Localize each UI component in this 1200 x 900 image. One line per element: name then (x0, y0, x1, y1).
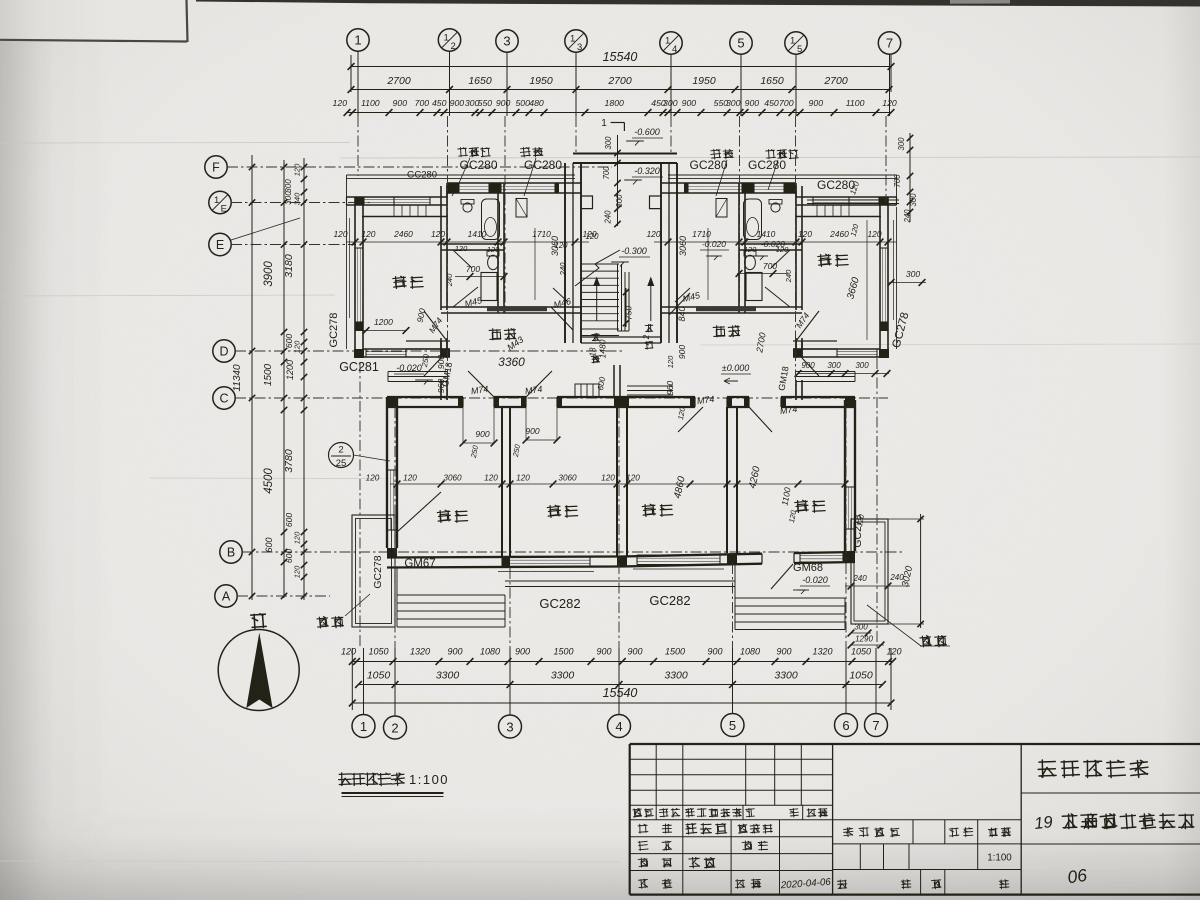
svg-text:1320: 1320 (410, 647, 430, 657)
svg-text:-0.020: -0.020 (702, 239, 726, 249)
svg-text:1: 1 (360, 719, 367, 734)
svg-text:550: 550 (478, 98, 493, 108)
svg-text:300: 300 (726, 98, 741, 108)
svg-text:120: 120 (516, 474, 530, 483)
svg-text:120: 120 (341, 647, 356, 657)
svg-text:3300: 3300 (664, 670, 688, 682)
svg-text:300: 300 (604, 136, 613, 150)
svg-text:120: 120 (886, 647, 901, 657)
svg-text:3300: 3300 (551, 670, 575, 682)
svg-text:480: 480 (529, 98, 544, 108)
svg-text:19: 19 (1033, 813, 1053, 833)
svg-text:300: 300 (906, 269, 920, 279)
svg-text:300: 300 (854, 623, 868, 632)
svg-text:1: 1 (354, 33, 361, 48)
svg-text:300: 300 (615, 194, 624, 208)
svg-text:700: 700 (415, 98, 430, 108)
svg-text:120: 120 (882, 98, 897, 108)
svg-text:1410: 1410 (757, 229, 776, 239)
svg-text:120: 120 (334, 229, 348, 239)
svg-text:700: 700 (763, 261, 777, 271)
svg-text:300: 300 (284, 179, 293, 193)
svg-text:1650: 1650 (468, 75, 492, 87)
svg-text:2: 2 (338, 445, 343, 456)
svg-text:1650: 1650 (760, 75, 784, 87)
svg-text:2700: 2700 (823, 75, 848, 87)
svg-text:120: 120 (626, 474, 640, 483)
svg-text:C: C (219, 392, 228, 406)
svg-text:18: 18 (589, 347, 598, 356)
svg-text:750: 750 (624, 306, 634, 320)
svg-text:-0.600: -0.600 (634, 127, 660, 137)
svg-text:3300: 3300 (436, 670, 460, 682)
svg-text:-0.020: -0.020 (802, 575, 828, 585)
svg-text:120: 120 (583, 229, 597, 239)
svg-text:120: 120 (333, 98, 348, 108)
svg-text:GC278: GC278 (372, 555, 384, 588)
svg-text:1050: 1050 (368, 647, 388, 657)
svg-text:900: 900 (525, 426, 539, 436)
svg-text:120: 120 (403, 474, 417, 483)
svg-text:1: 1 (443, 33, 448, 44)
svg-text:340: 340 (293, 192, 302, 205)
svg-text:300: 300 (827, 361, 841, 370)
svg-text:GC281: GC281 (339, 360, 379, 374)
svg-text:120: 120 (868, 229, 882, 239)
svg-text:1320: 1320 (812, 647, 832, 657)
svg-text:1: 1 (790, 36, 795, 47)
svg-text:700: 700 (602, 166, 611, 180)
svg-text:120: 120 (366, 474, 380, 483)
svg-text:GC280: GC280 (748, 158, 786, 172)
svg-text:1200: 1200 (374, 317, 393, 327)
svg-text:120: 120 (361, 229, 375, 239)
svg-text:1950: 1950 (692, 75, 716, 87)
svg-text:5: 5 (737, 36, 744, 51)
svg-text:2: 2 (450, 41, 455, 52)
svg-text:120: 120 (431, 229, 445, 239)
svg-text:900: 900 (450, 98, 465, 108)
svg-text:2700: 2700 (607, 75, 632, 87)
svg-text:120: 120 (293, 531, 302, 544)
svg-text:1500: 1500 (665, 647, 685, 657)
svg-text:3900: 3900 (263, 261, 275, 287)
svg-text:1:100: 1:100 (409, 772, 449, 787)
svg-text:GC280: GC280 (459, 158, 497, 172)
svg-text:1050: 1050 (849, 670, 873, 682)
svg-text:D: D (219, 345, 228, 359)
svg-text:1: 1 (570, 34, 575, 45)
svg-text:2700: 2700 (386, 75, 411, 87)
svg-text:GC282: GC282 (649, 593, 690, 608)
svg-text:3060: 3060 (550, 236, 560, 256)
svg-text:06: 06 (1066, 865, 1088, 888)
svg-text:25: 25 (336, 458, 347, 469)
svg-text:GC280: GC280 (407, 170, 437, 181)
svg-text:120: 120 (484, 474, 498, 483)
svg-text:7: 7 (872, 718, 879, 733)
svg-text:15540: 15540 (603, 686, 638, 700)
svg-text:900: 900 (447, 647, 462, 657)
svg-text:GC282: GC282 (539, 596, 580, 611)
svg-text:900: 900 (627, 647, 642, 657)
svg-text:1950: 1950 (529, 75, 553, 87)
svg-text:3060: 3060 (443, 474, 462, 483)
svg-text:240: 240 (903, 209, 912, 224)
svg-text:GC280: GC280 (689, 158, 727, 172)
svg-text:3180: 3180 (283, 254, 295, 278)
svg-text:1080: 1080 (480, 647, 500, 657)
svg-text:3: 3 (503, 34, 510, 49)
svg-text:120: 120 (293, 163, 302, 176)
svg-text:700: 700 (779, 98, 794, 108)
svg-text:900: 900 (596, 647, 611, 657)
svg-text:120: 120 (601, 474, 615, 483)
svg-text:GM68: GM68 (793, 562, 823, 574)
svg-text:900: 900 (393, 98, 408, 108)
svg-text:6: 6 (842, 718, 849, 733)
svg-text:700: 700 (893, 174, 902, 188)
svg-text:300: 300 (897, 137, 906, 151)
svg-text:120: 120 (487, 245, 500, 254)
svg-text:GC278: GC278 (852, 514, 864, 547)
svg-text:±0.000: ±0.000 (722, 363, 749, 373)
svg-text:1: 1 (601, 118, 607, 129)
svg-text:900: 900 (475, 429, 489, 439)
svg-text:120: 120 (455, 244, 468, 253)
svg-text:240: 240 (445, 273, 454, 287)
svg-text:900: 900 (809, 98, 824, 108)
svg-text:1100: 1100 (846, 98, 865, 108)
svg-text:1290: 1290 (855, 635, 873, 644)
svg-text:2460: 2460 (829, 229, 849, 239)
svg-text:15540: 15540 (603, 50, 638, 64)
svg-text:120: 120 (293, 565, 302, 578)
svg-text:3: 3 (577, 42, 582, 53)
svg-text:1710: 1710 (692, 229, 711, 239)
svg-text:1500: 1500 (263, 363, 274, 386)
svg-text:3060: 3060 (678, 236, 688, 256)
svg-text:GC280: GC280 (524, 158, 562, 172)
svg-text:-0.320: -0.320 (634, 166, 660, 176)
svg-text:2460: 2460 (393, 229, 413, 239)
svg-text:E: E (221, 204, 227, 215)
svg-text:GC278: GC278 (328, 313, 340, 348)
svg-text:2: 2 (391, 720, 398, 735)
svg-text:1100: 1100 (361, 98, 380, 108)
svg-text:E: E (216, 238, 224, 252)
svg-text:120: 120 (744, 245, 757, 254)
svg-text:1: 1 (665, 36, 670, 47)
svg-text:600: 600 (284, 549, 294, 563)
svg-text:840: 840 (677, 306, 687, 321)
svg-text:1:100: 1:100 (987, 853, 1012, 864)
svg-text:3780: 3780 (283, 449, 295, 473)
svg-text:900: 900 (496, 98, 511, 108)
svg-text:600: 600 (264, 537, 274, 552)
svg-text:900: 900 (707, 647, 722, 657)
svg-text:960: 960 (665, 381, 675, 395)
svg-text:-0.020: -0.020 (396, 363, 422, 373)
svg-text:900: 900 (776, 647, 791, 657)
svg-text:600: 600 (284, 513, 294, 527)
svg-text:1800: 1800 (605, 98, 624, 108)
svg-text:900: 900 (515, 647, 530, 657)
svg-text:120: 120 (293, 340, 302, 353)
svg-text:-0.300: -0.300 (621, 246, 647, 256)
svg-text:240: 240 (784, 269, 793, 283)
svg-text:1050: 1050 (851, 647, 871, 657)
svg-text:1710: 1710 (532, 229, 551, 239)
svg-text:A: A (222, 590, 231, 604)
svg-text:240: 240 (852, 574, 867, 583)
svg-text:5: 5 (797, 44, 802, 55)
svg-text:120: 120 (798, 229, 812, 239)
svg-text:300: 300 (909, 193, 918, 207)
svg-text:4500: 4500 (263, 468, 275, 494)
svg-text:-0.020: -0.020 (761, 239, 785, 249)
svg-text:2: 2 (642, 334, 651, 340)
svg-text:900: 900 (745, 98, 760, 108)
svg-text:1080: 1080 (740, 647, 760, 657)
svg-text:450: 450 (432, 98, 447, 108)
svg-text:3300: 3300 (774, 670, 798, 682)
svg-text:3360: 3360 (498, 355, 525, 369)
svg-text:1410: 1410 (468, 229, 487, 239)
svg-text:240: 240 (559, 262, 568, 277)
svg-text:1: 1 (214, 195, 219, 206)
svg-text:900: 900 (801, 361, 815, 370)
svg-text:1200: 1200 (285, 360, 295, 380)
svg-text:1480: 1480 (598, 339, 608, 358)
svg-text:1050: 1050 (367, 670, 391, 682)
svg-text:450: 450 (764, 98, 779, 108)
svg-text:900: 900 (677, 345, 687, 359)
svg-text:1500: 1500 (553, 647, 573, 657)
svg-text:900: 900 (682, 98, 697, 108)
svg-text:700: 700 (466, 264, 480, 274)
svg-text:300: 300 (855, 361, 869, 370)
svg-text:4: 4 (615, 719, 622, 734)
svg-text:F: F (212, 161, 220, 175)
svg-text:5: 5 (729, 718, 736, 733)
svg-text:7: 7 (886, 36, 893, 51)
svg-text:3: 3 (506, 719, 513, 734)
svg-text:B: B (227, 546, 235, 560)
svg-text:300: 300 (663, 98, 678, 108)
svg-text:4: 4 (672, 44, 677, 55)
svg-text:500: 500 (515, 98, 530, 108)
svg-text:240: 240 (604, 210, 613, 225)
svg-text:120: 120 (647, 229, 661, 239)
svg-text:120: 120 (666, 355, 675, 368)
svg-text:3060: 3060 (558, 474, 577, 483)
svg-text:11340: 11340 (232, 364, 243, 392)
